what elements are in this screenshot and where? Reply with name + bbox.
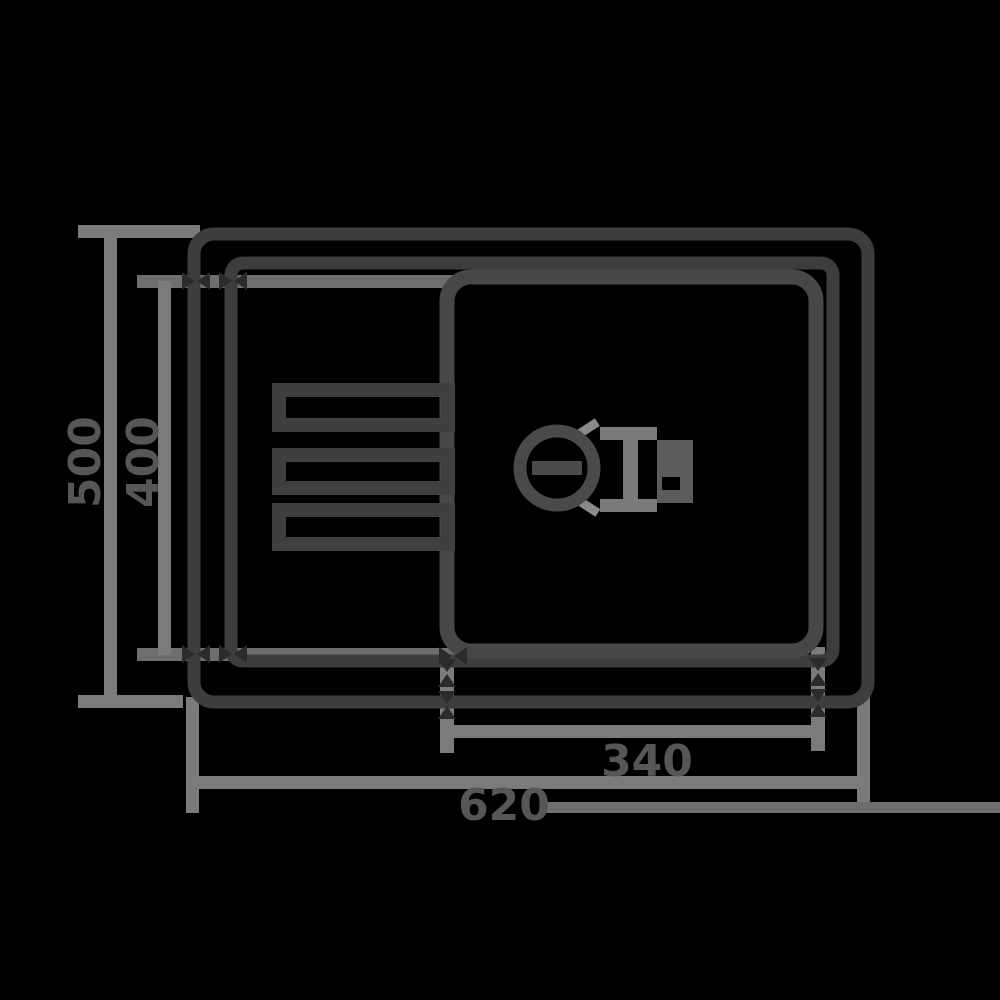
overflow-slot (662, 477, 680, 490)
dimension-label-bowl-depth: 400 (118, 416, 169, 508)
dimension-overall-width (186, 695, 1000, 813)
dimension-label-bowl-width: 340 (601, 736, 693, 787)
drainboard-ridge (279, 390, 448, 425)
fitting-bracket (600, 499, 657, 512)
drainboard-ridge (279, 455, 448, 488)
dimension-label-overall-width: 620 (458, 780, 550, 831)
dimension-label-overall-depth: 500 (60, 416, 111, 508)
dimension-bowl-depth (137, 275, 455, 661)
drainboard-ridge (279, 510, 448, 544)
dim-cap (857, 695, 870, 813)
drainboard-ridges (279, 390, 448, 544)
drain-assembly (520, 418, 693, 516)
drain-slot (532, 461, 582, 475)
dim-cap (78, 225, 200, 238)
baseline-rule (543, 802, 1000, 813)
sink-dimension-drawing: 500 400 340 620 (0, 0, 1000, 1000)
drawing-canvas: 500 400 340 620 (0, 0, 1000, 1000)
overflow-icon (657, 440, 693, 503)
fitting-bracket (623, 433, 638, 505)
dim-cap (78, 695, 183, 708)
dim-cap (186, 697, 199, 813)
